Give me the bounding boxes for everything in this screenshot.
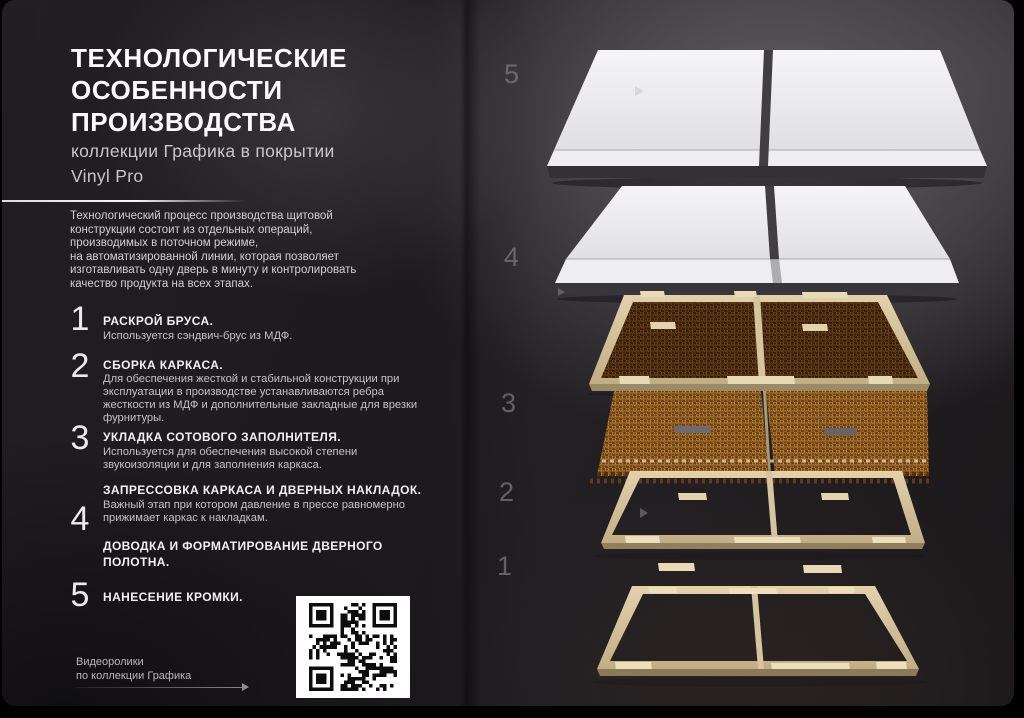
step-desc-4: Важный этап при котором давление в пресс… — [103, 499, 405, 525]
door-layer-3-frame-honeycomb — [587, 291, 931, 398]
step-desc-2: Для обеспечения жесткой и стабильной кон… — [103, 373, 417, 425]
footer-caption: Видеоролики по коллекции Графика — [76, 655, 191, 683]
door-layer-4-panel — [555, 186, 959, 304]
page-subtitle: коллекции Графика в покрытии Vinyl Pro — [71, 139, 335, 189]
arrow-right-icon — [242, 683, 249, 691]
page-title: ТЕХНОЛОГИЧЕСКИЕ ОСОБЕННОСТИ ПРОИЗВОДСТВА — [71, 42, 347, 138]
qr-code — [309, 603, 397, 691]
slide: ТЕХНОЛОГИЧЕСКИЕ ОСОБЕННОСТИ ПРОИЗВОДСТВА… — [2, 0, 1014, 706]
step-title-3: УКЛАДКА СОТОВОГО ЗАПОЛНИТЕЛЯ. — [103, 429, 341, 445]
step-desc-3: Используется для обеспечения высокой сте… — [103, 446, 357, 472]
door-layer-2-frame — [595, 471, 925, 560]
step-title-4b: ДОВОДКА И ФОРМАТИРОВАНИЕ ДВЕРНОГО ПОЛОТН… — [103, 538, 383, 570]
divider-line — [2, 200, 246, 202]
door-layer-5-panel — [547, 50, 987, 189]
honeycomb-filler-sheets — [590, 391, 930, 481]
step-title-5: НАНЕСЕНИЕ КРОМКИ. — [103, 589, 243, 605]
step-number-5: 5 — [64, 576, 96, 615]
step-number-2: 2 — [64, 347, 96, 386]
step-number-1: 1 — [64, 300, 96, 339]
step-number-3: 3 — [64, 419, 96, 458]
exploded-door-diagram — [472, 0, 1014, 706]
step-title-1: РАСКРОЙ БРУСА. — [103, 313, 213, 329]
qr-code-box — [296, 596, 410, 698]
step-desc-1: Используется сэндвич-брус из МДФ. — [103, 330, 292, 343]
step-title-4: ЗАПРЕССОВКА КАРКАСА И ДВЕРНЫХ НАКЛАДОК. — [103, 482, 421, 498]
door-layer-1-frame — [590, 563, 926, 687]
step-title-2: СБОРКА КАРКАСА. — [103, 357, 223, 373]
side-tab-decoration — [5, 8, 36, 189]
intro-paragraph: Технологический процесс производства щит… — [70, 210, 356, 291]
footer-arrow-line — [76, 687, 242, 688]
step-number-4: 4 — [64, 500, 96, 539]
